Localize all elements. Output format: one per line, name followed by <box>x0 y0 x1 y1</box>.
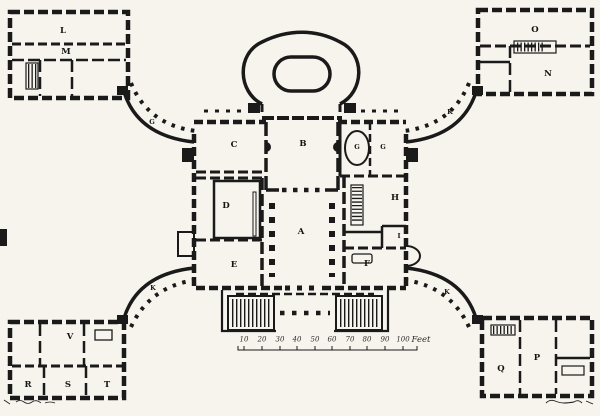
room-label-G2: G <box>380 144 386 151</box>
room-label-R: R <box>24 381 31 390</box>
room-label-T: T <box>104 381 110 390</box>
scale-tick-60: 60 <box>328 337 337 344</box>
west-porch <box>182 148 194 162</box>
east-porch <box>406 148 418 162</box>
southeast-quadrant <box>404 268 483 327</box>
engraver-signature-right <box>546 400 593 404</box>
scale-tick-30: 30 <box>276 337 285 344</box>
room-label-G1: G <box>354 144 360 151</box>
floor-plan-drawing <box>0 0 600 416</box>
northeast-quadrant <box>404 83 483 142</box>
flue-wall <box>253 192 256 236</box>
corridor-label-sw: K <box>150 285 156 292</box>
scale-tick-90: 90 <box>381 337 390 344</box>
room-label-P: P <box>534 354 540 363</box>
room-label-C: C <box>231 141 238 150</box>
corridor-label-nw: G <box>149 119 155 126</box>
central-block <box>178 111 420 288</box>
scale-tick-10: 10 <box>240 337 249 344</box>
scale-tick-40: 40 <box>293 337 302 344</box>
room-label-O: O <box>531 26 538 35</box>
south-portico <box>222 290 388 331</box>
scale-tick-20: 20 <box>258 337 267 344</box>
west-bay <box>178 232 194 256</box>
corridor-label-ne: K <box>447 109 453 116</box>
scale-tick-100: 100 <box>396 337 409 344</box>
room-label-Q: Q <box>497 365 504 374</box>
room-label-I: I <box>397 233 400 240</box>
room-label-F: F <box>364 260 370 269</box>
niche <box>333 142 338 152</box>
room-label-S: S <box>65 381 71 390</box>
room-label-N: N <box>544 70 552 79</box>
horseshoe-stair <box>243 32 359 113</box>
room-label-V: V <box>67 333 74 342</box>
corridor-label-se: K <box>444 289 450 296</box>
scale-tick-50: 50 <box>311 337 320 344</box>
niche <box>266 142 271 152</box>
room-label-A: A <box>298 228 305 237</box>
scale-bar-rule <box>238 346 417 350</box>
room-label-D: D <box>222 202 229 211</box>
room-label-B: B <box>299 140 306 149</box>
scale-tick-80: 80 <box>363 337 372 344</box>
engraver-signature-left <box>4 400 55 404</box>
floor-plan-engraving: L M O N G K K K C B G G D H A I E F V R … <box>0 0 600 416</box>
scale-unit-label: Feet <box>412 336 431 345</box>
northeast-pavilion <box>478 10 592 94</box>
room-label-H: H <box>391 194 399 203</box>
room-label-E: E <box>231 261 237 270</box>
scale-tick-70: 70 <box>346 337 355 344</box>
room-label-M: M <box>61 48 70 57</box>
room-label-L: L <box>60 27 66 36</box>
southwest-quadrant <box>117 268 196 327</box>
left-edge-wall <box>0 229 7 246</box>
